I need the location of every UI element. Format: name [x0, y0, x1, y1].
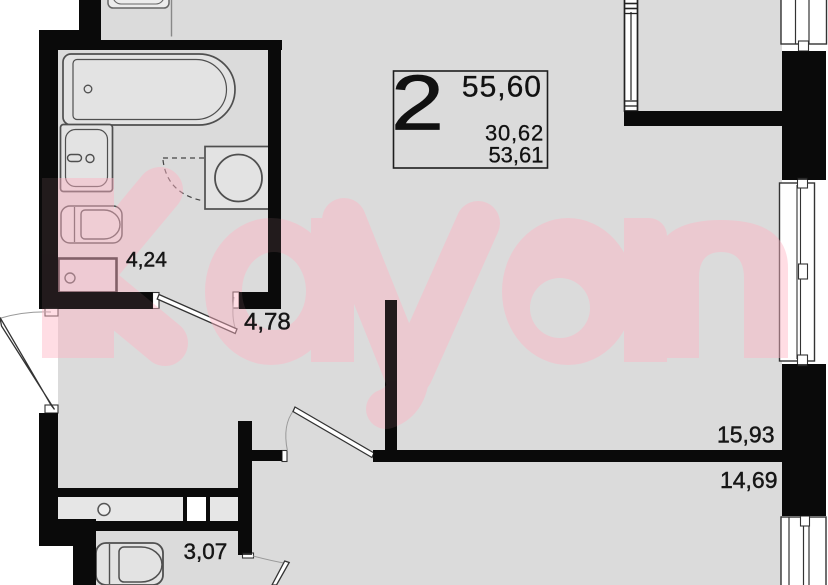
svg-text:55,60: 55,60 [462, 71, 542, 104]
svg-text:3,07: 3,07 [184, 539, 228, 564]
svg-text:14,69: 14,69 [720, 467, 778, 493]
svg-text:2: 2 [391, 59, 444, 147]
svg-text:15,93: 15,93 [717, 422, 775, 448]
svg-text:4,24: 4,24 [126, 249, 167, 272]
svg-text:4,78: 4,78 [244, 309, 291, 336]
svg-text:53,61: 53,61 [488, 143, 543, 168]
